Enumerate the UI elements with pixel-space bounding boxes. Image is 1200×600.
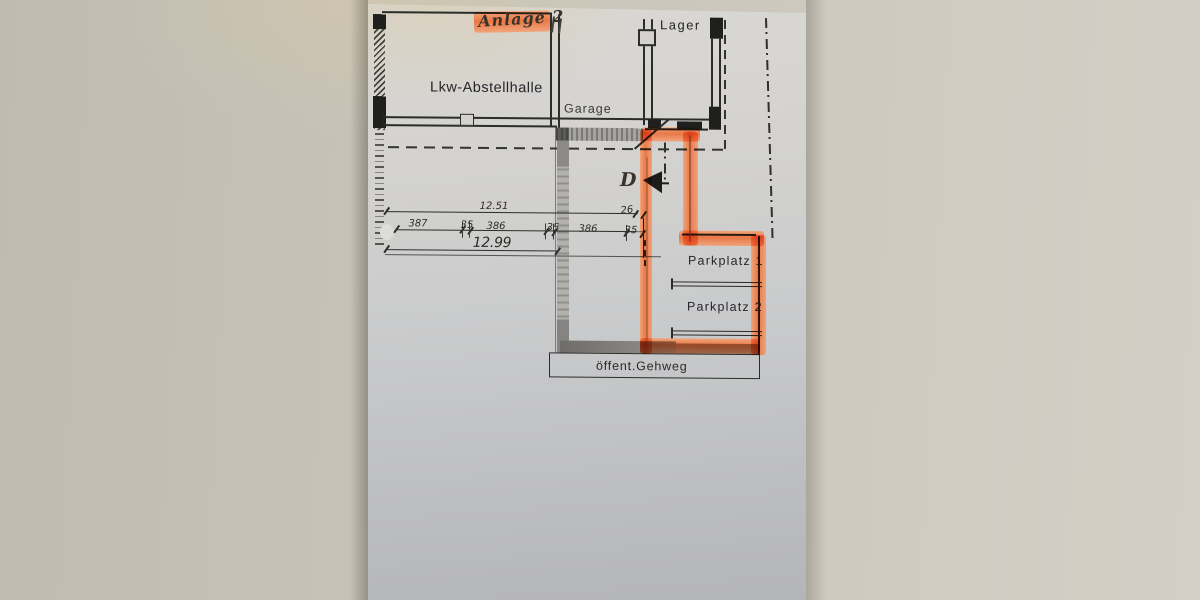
parking-divider-1 xyxy=(672,281,762,283)
lager-wall-right-outer xyxy=(711,39,713,107)
door-label: D xyxy=(620,169,637,191)
stipple-dark-end xyxy=(556,127,569,140)
stipple-dark-top xyxy=(557,140,569,166)
parking-divider-2-tick xyxy=(671,327,673,338)
dimension-line-segments xyxy=(396,229,644,232)
sidewalk-label: öffent.Gehweg xyxy=(596,359,687,374)
paper-edge-shadow-left xyxy=(350,0,368,600)
wall-left-cap-top xyxy=(373,14,386,29)
dim-offset: 26 xyxy=(617,204,636,217)
photo-of-floor-plan: D 12.51 26 xyxy=(0,0,1200,600)
dim-seg-4: 35 xyxy=(542,222,564,233)
label-garage: Garage xyxy=(564,102,612,116)
dim-upper-total: 12.51 xyxy=(474,201,514,212)
label-lkw-abstellhalle: Lkw-Abstellhalle xyxy=(430,79,543,96)
dim-lower-total: 12.99 xyxy=(466,235,518,251)
boundary-core-under-highlight xyxy=(689,136,691,242)
dim-seg-3: 386 xyxy=(482,221,510,232)
lager-wall-right-inner xyxy=(719,39,721,107)
dim-seg-1: 387 xyxy=(404,218,432,229)
dim-seg-2: 35 xyxy=(456,220,478,231)
dim-seg-6: 35 xyxy=(620,225,642,236)
lager-wall-right-top xyxy=(710,18,723,39)
parking-divider-2 xyxy=(672,330,762,332)
label-lager: Lager xyxy=(660,17,701,32)
dim-seg-5: 386 xyxy=(574,224,602,235)
door-axis-dashdot xyxy=(664,142,666,184)
parking-divider-1-tick xyxy=(671,278,673,289)
parking-divider-1b xyxy=(672,285,762,287)
white-smudge xyxy=(380,224,394,240)
floor-plan-sheet: D 12.51 26 xyxy=(368,0,806,600)
column-symbol xyxy=(460,114,474,126)
highlight-right-vertical xyxy=(751,235,766,355)
baseline-extended xyxy=(385,254,661,257)
lager-wall-right-bottom xyxy=(709,107,721,130)
parking-divider-2b xyxy=(672,334,762,336)
highlight-bottom-horizontal xyxy=(640,338,760,354)
lager-door-symbol xyxy=(638,29,656,46)
paper-edge-shadow-right xyxy=(806,0,826,600)
stipple-band-horizontal xyxy=(556,127,643,141)
property-line-dashdot xyxy=(765,18,774,239)
plan-drawing: D 12.51 26 xyxy=(368,0,806,600)
dashed-boundary-vertical xyxy=(724,20,726,151)
garage-wall-left-extension xyxy=(555,127,556,352)
boundary-core-under-highlight-2 xyxy=(646,157,648,347)
